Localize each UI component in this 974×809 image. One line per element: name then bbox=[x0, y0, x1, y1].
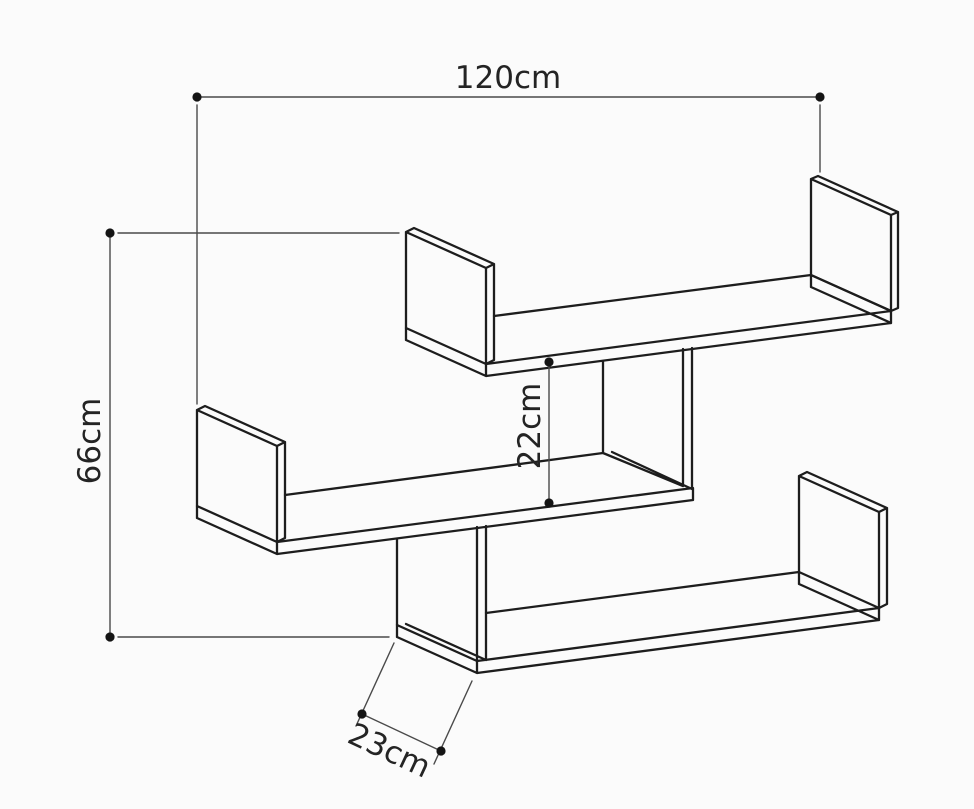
depth-dimension: 23cm bbox=[342, 643, 472, 786]
width-dimension-dot-right bbox=[815, 92, 824, 101]
height-dimension-label: 66cm bbox=[72, 398, 108, 485]
top-shelf-left-panel bbox=[406, 228, 494, 364]
width-dimension-label: 120cm bbox=[455, 60, 561, 96]
height-dimension: 66cm bbox=[72, 228, 399, 641]
middle-shelf bbox=[197, 348, 693, 554]
gap-dimension: 22cm bbox=[512, 357, 554, 507]
diagram-svg: 120cm 66cm 22cm 23cm bbox=[0, 0, 974, 809]
gap-dimension-dot-top bbox=[544, 357, 553, 366]
gap-dimension-dot-bottom bbox=[544, 498, 553, 507]
width-dimension-line bbox=[197, 97, 820, 404]
depth-dimension-dot-right bbox=[436, 746, 445, 755]
height-dimension-dot-top bbox=[105, 228, 114, 237]
shelf-dimension-diagram: 120cm 66cm 22cm 23cm bbox=[0, 0, 974, 809]
width-dimension: 120cm bbox=[192, 60, 824, 404]
height-dimension-dot-bottom bbox=[105, 632, 114, 641]
bottom-shelf-board bbox=[397, 572, 879, 673]
lower-divider bbox=[397, 526, 486, 661]
gap-dimension-label: 22cm bbox=[512, 383, 548, 470]
width-dimension-dot-left bbox=[192, 92, 201, 101]
top-shelf bbox=[406, 176, 898, 376]
top-shelf-right-panel bbox=[811, 176, 898, 311]
upper-divider bbox=[603, 348, 692, 489]
bottom-shelf bbox=[397, 472, 887, 673]
middle-shelf-left-panel bbox=[197, 406, 285, 542]
bottom-shelf-right-panel bbox=[799, 472, 887, 608]
